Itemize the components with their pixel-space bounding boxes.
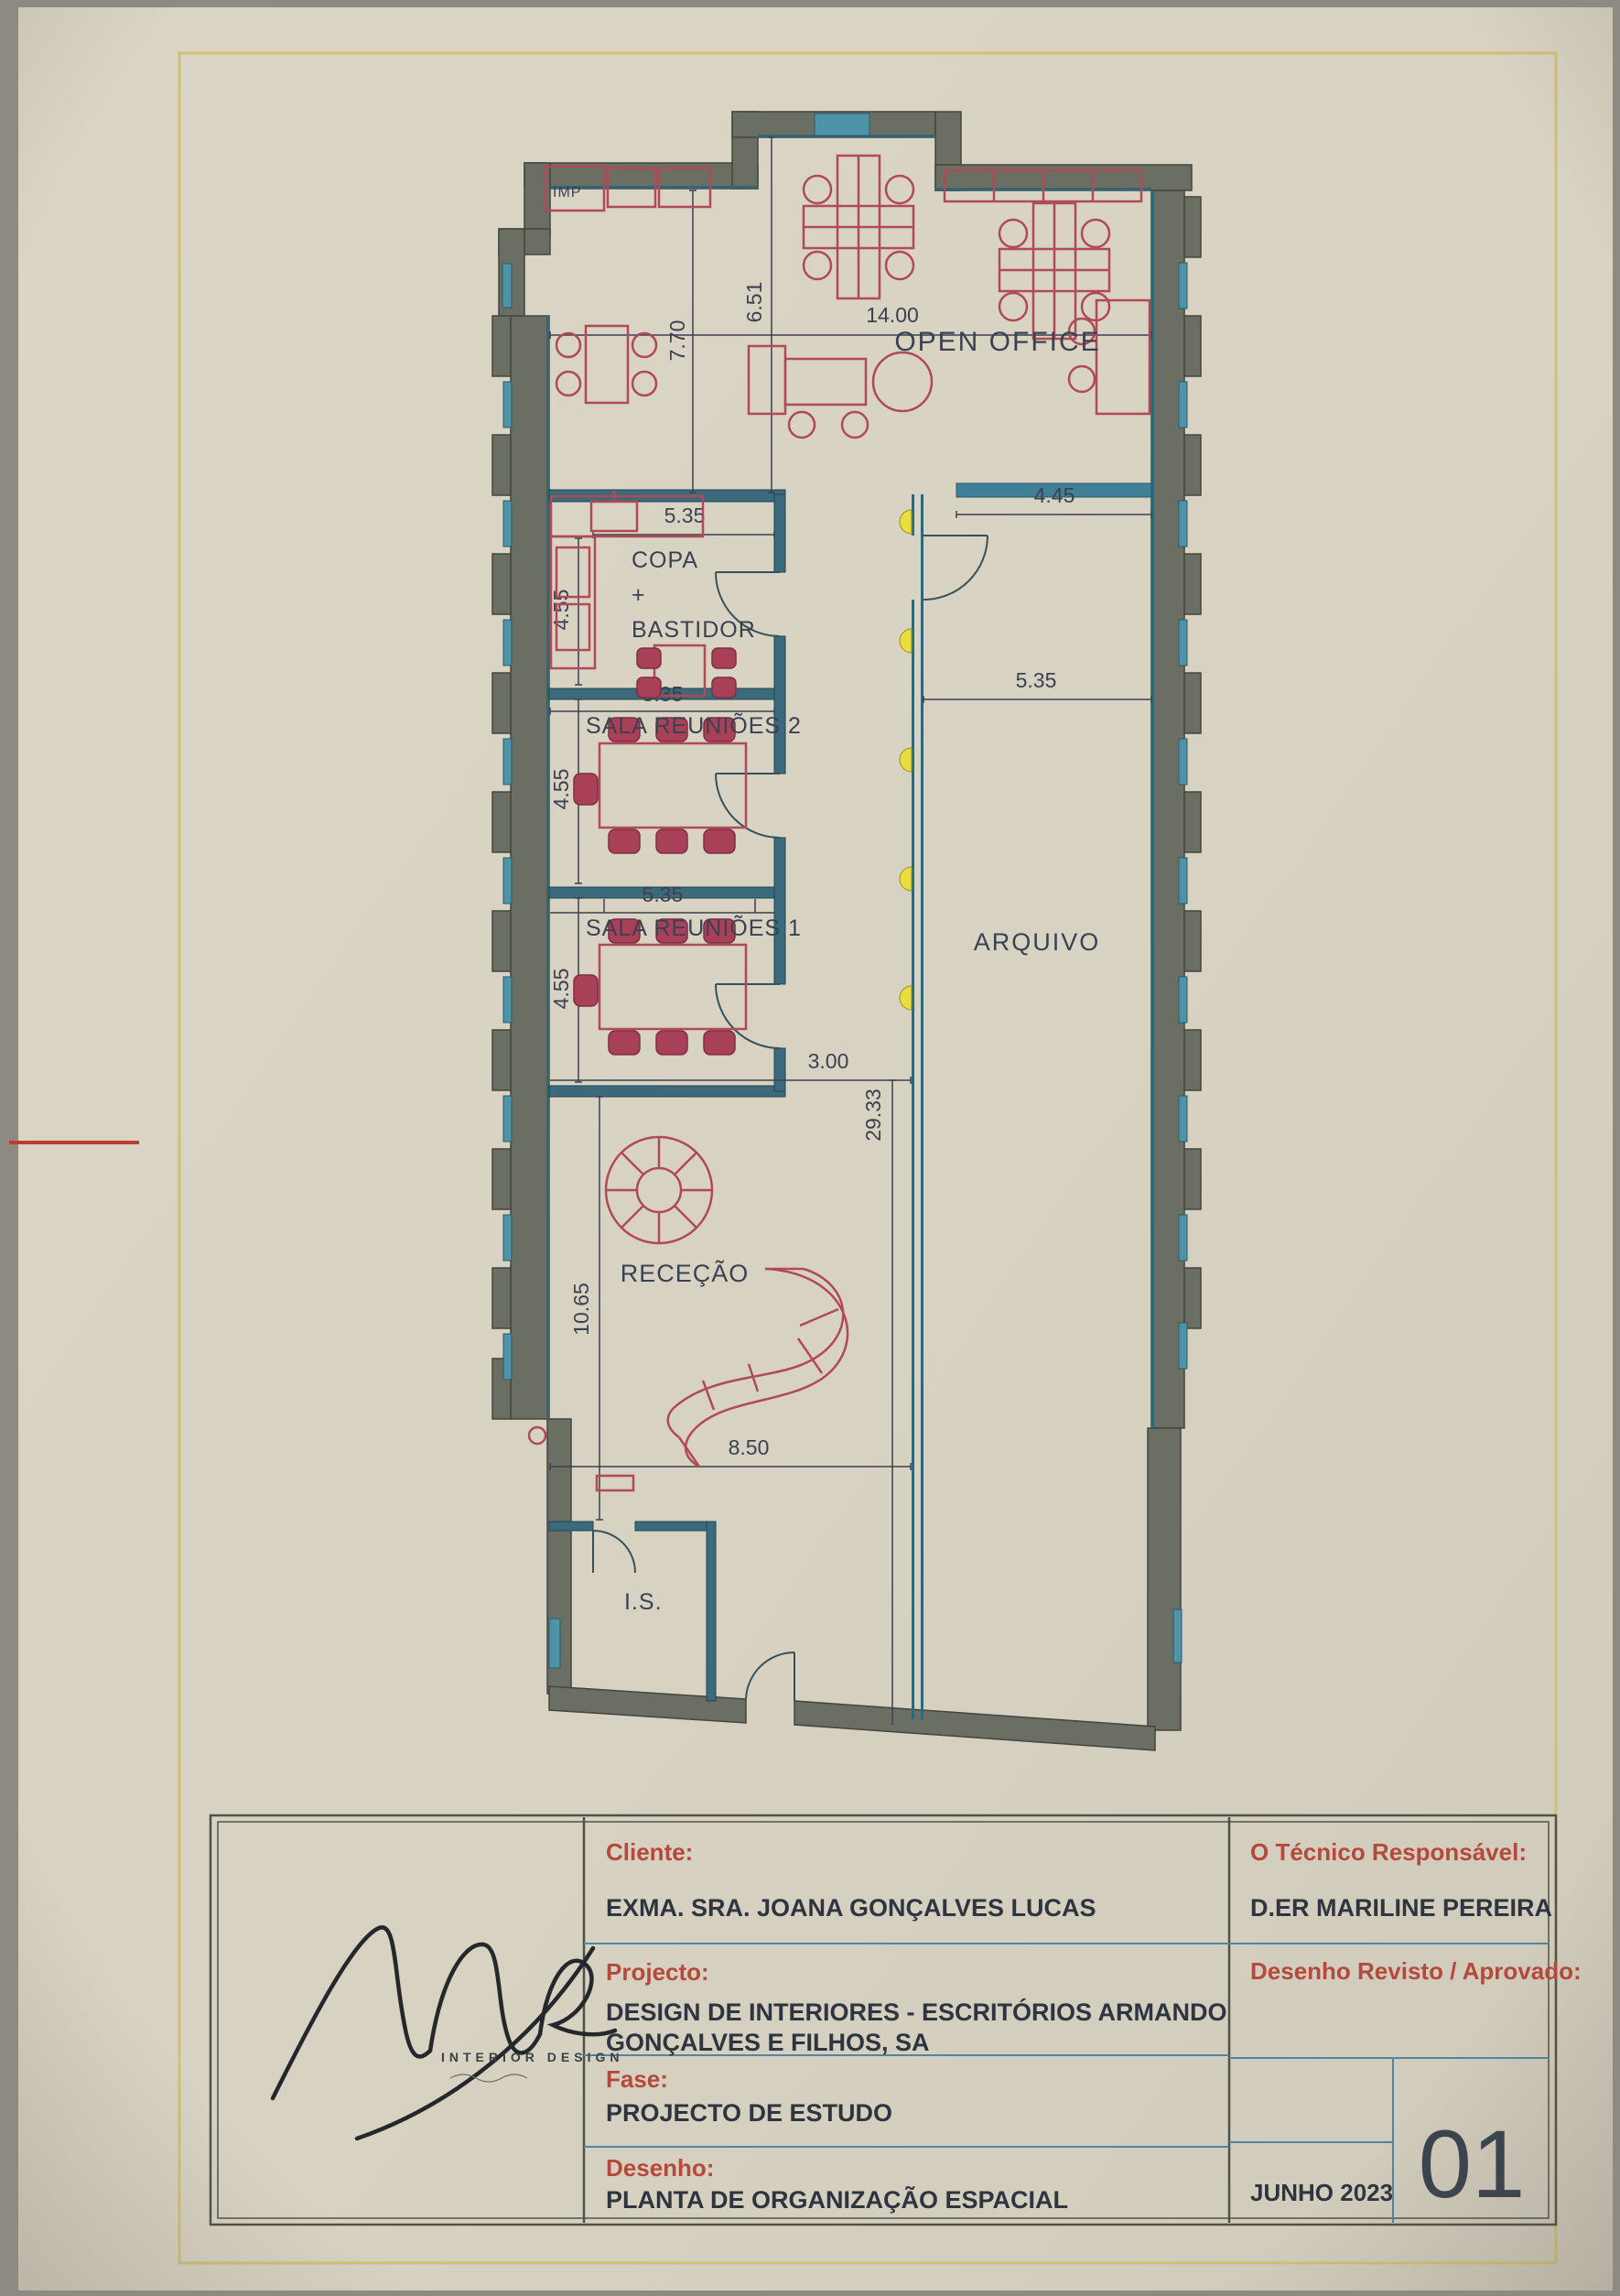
photo-vignette [18, 7, 1613, 2291]
scanned-drawing-photo: 7.70 6.51 14.00 4.45 5.35 4.55 5.35 4.55… [0, 0, 1620, 2296]
drawing-sheet: 7.70 6.51 14.00 4.45 5.35 4.55 5.35 4.55… [0, 0, 1620, 2296]
